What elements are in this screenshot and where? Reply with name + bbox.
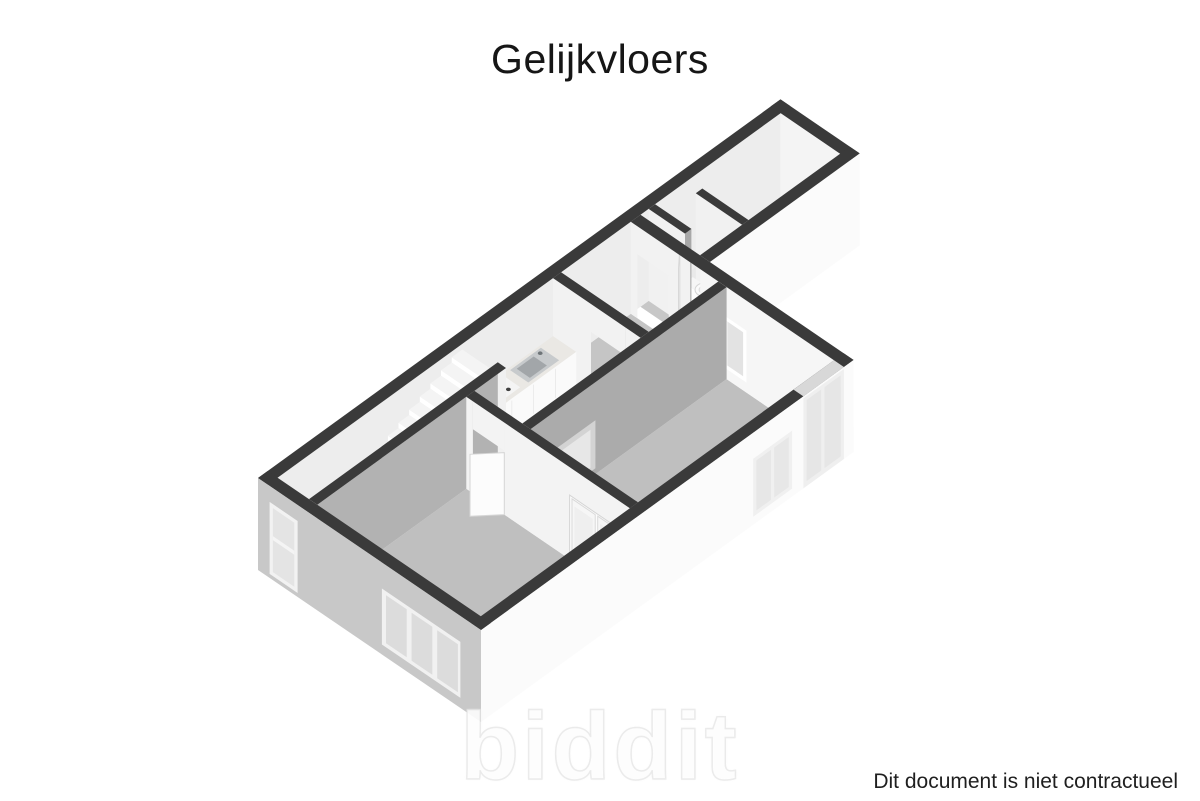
page: Gelijkvloers biddit Dit document is niet… xyxy=(0,0,1200,801)
disclaimer-text: Dit document is niet contractueel xyxy=(873,770,1178,794)
floorplan-3d-render xyxy=(0,0,1200,801)
